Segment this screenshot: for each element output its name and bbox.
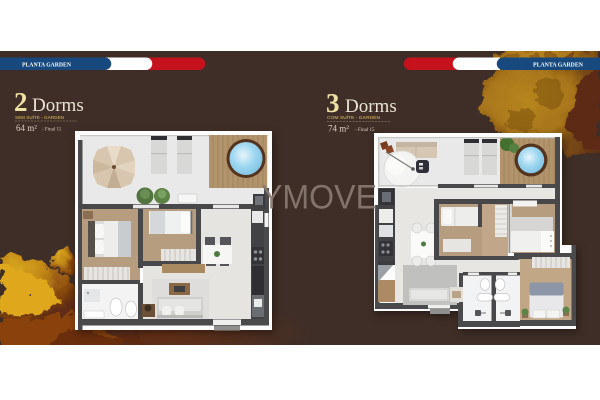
svg-text:YMOVE: YMOVE	[261, 179, 377, 217]
